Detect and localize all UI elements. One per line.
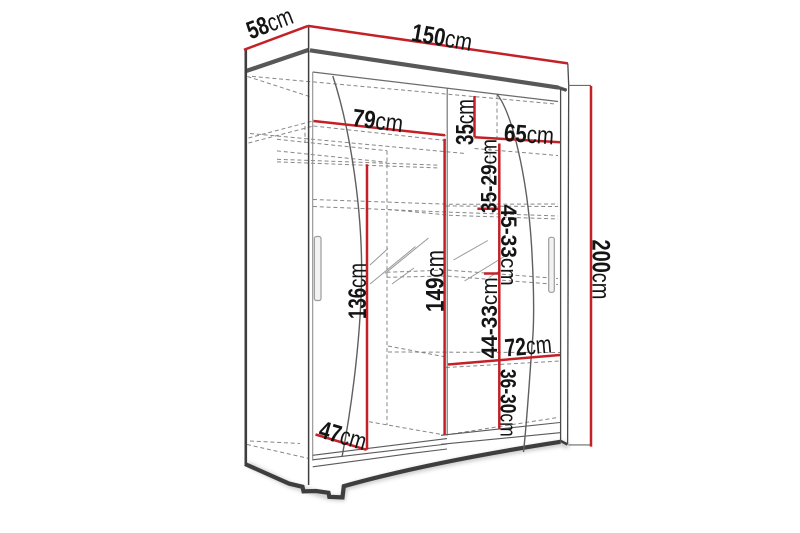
svg-text:65cm: 65cm [503,118,555,150]
svg-text:200cm: 200cm [587,240,615,300]
svg-text:136cm: 136cm [343,263,371,319]
svg-text:45-33cm: 45-33cm [496,205,521,286]
svg-text:149cm: 149cm [421,250,449,312]
svg-text:44-33cm: 44-33cm [477,277,502,358]
svg-text:35cm: 35cm [451,99,479,145]
svg-text:72cm: 72cm [504,330,553,362]
svg-text:36-30cm: 36-30cm [495,369,519,437]
svg-text:35-29cm: 35-29cm [477,139,502,213]
